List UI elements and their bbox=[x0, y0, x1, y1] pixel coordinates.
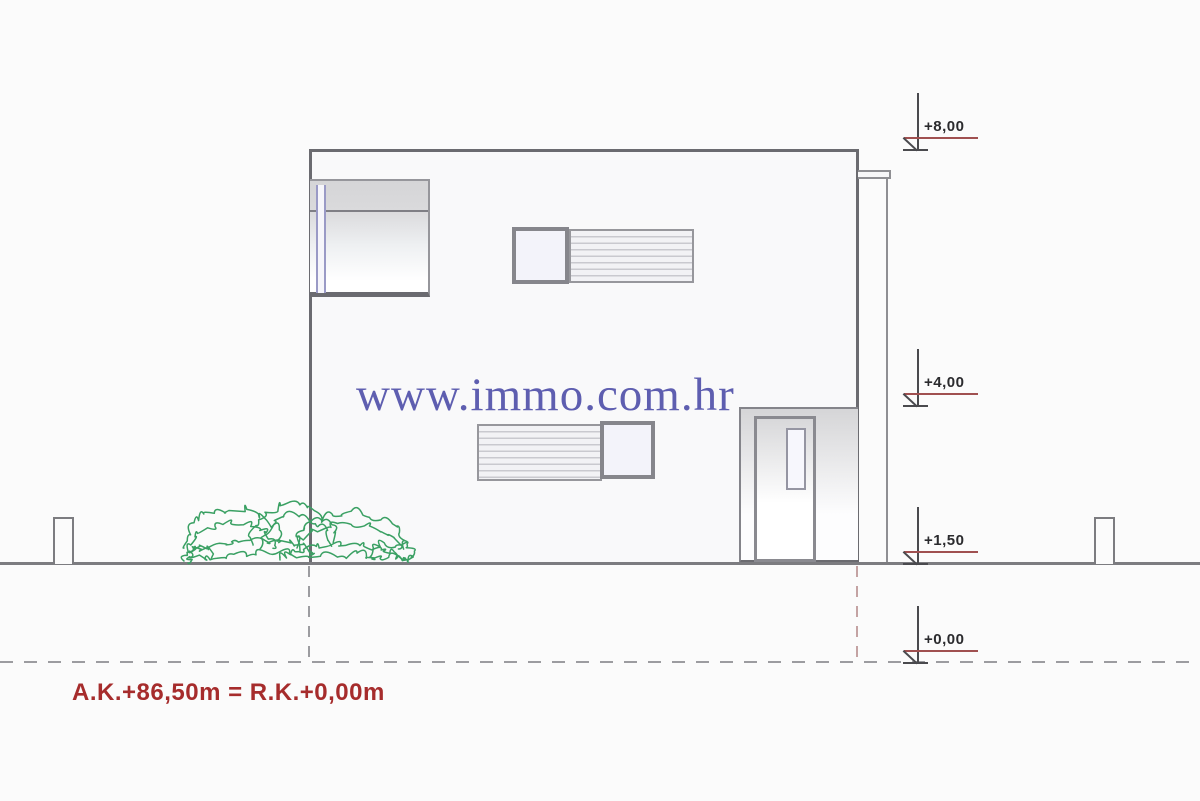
upper-left-window-mullion bbox=[316, 185, 326, 293]
marker-label: +0,00 bbox=[924, 631, 964, 648]
elevation-marker-4-00: +4,00 bbox=[903, 349, 987, 409]
marker-tick bbox=[903, 662, 928, 664]
datum-annotation-text: A.K.+86,50m = R.K.+0,00m bbox=[72, 679, 385, 707]
elevation-marker-1-50: +1,50 bbox=[903, 507, 987, 567]
ground-line bbox=[0, 562, 1200, 565]
marker-label: +8,00 bbox=[924, 118, 964, 135]
lower-window-glass bbox=[600, 421, 655, 479]
elevation-marker-8-00: +8,00 bbox=[903, 93, 987, 153]
upper-window-glass bbox=[512, 227, 569, 284]
watermark-text: www.immo.com.hr bbox=[356, 368, 735, 422]
elevation-marker-0-00: +0,00 bbox=[903, 606, 987, 666]
marker-level-line bbox=[904, 650, 978, 652]
elevation-drawing: +8,00 +4,00 +1,50 +0,00 www.immo.com.hr … bbox=[0, 0, 1200, 801]
marker-level-line bbox=[904, 551, 978, 553]
marker-leader-line bbox=[917, 507, 919, 564]
rear-wall-edge bbox=[886, 179, 888, 564]
marker-leader-line bbox=[917, 349, 919, 406]
marker-tick bbox=[903, 563, 928, 565]
marker-level-line bbox=[904, 137, 978, 139]
datum-dashed-line bbox=[0, 661, 1200, 663]
marker-label: +4,00 bbox=[924, 374, 964, 391]
marker-level-line bbox=[904, 393, 978, 395]
upper-left-window bbox=[310, 179, 430, 297]
door-glass-panel bbox=[786, 428, 806, 490]
marker-tick bbox=[903, 405, 928, 407]
marker-label: +1,50 bbox=[924, 532, 964, 549]
right-fence-post bbox=[1094, 517, 1115, 564]
lower-window-shutter bbox=[477, 424, 602, 481]
marker-leader-line bbox=[917, 93, 919, 150]
upper-window-shutter bbox=[569, 229, 694, 283]
upper-left-window-divider bbox=[310, 210, 428, 212]
left-fence-post bbox=[53, 517, 74, 564]
rear-wall-cap bbox=[858, 170, 891, 179]
marker-tick bbox=[903, 149, 928, 151]
left-projection-dashed-line bbox=[308, 566, 310, 663]
right-projection-dashed-line bbox=[856, 566, 858, 663]
marker-leader-line bbox=[917, 606, 919, 663]
entrance-door bbox=[754, 416, 816, 562]
